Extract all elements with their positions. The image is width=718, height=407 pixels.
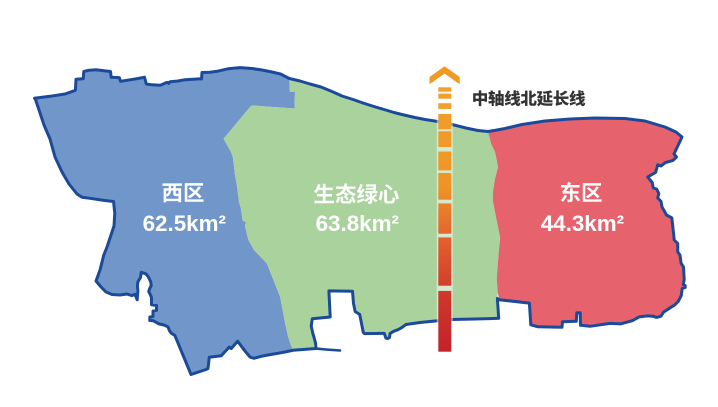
svg-text:62.5km²: 62.5km² (143, 211, 226, 236)
svg-text:44.3km²: 44.3km² (541, 211, 624, 236)
svg-text:63.8km²: 63.8km² (316, 211, 399, 236)
